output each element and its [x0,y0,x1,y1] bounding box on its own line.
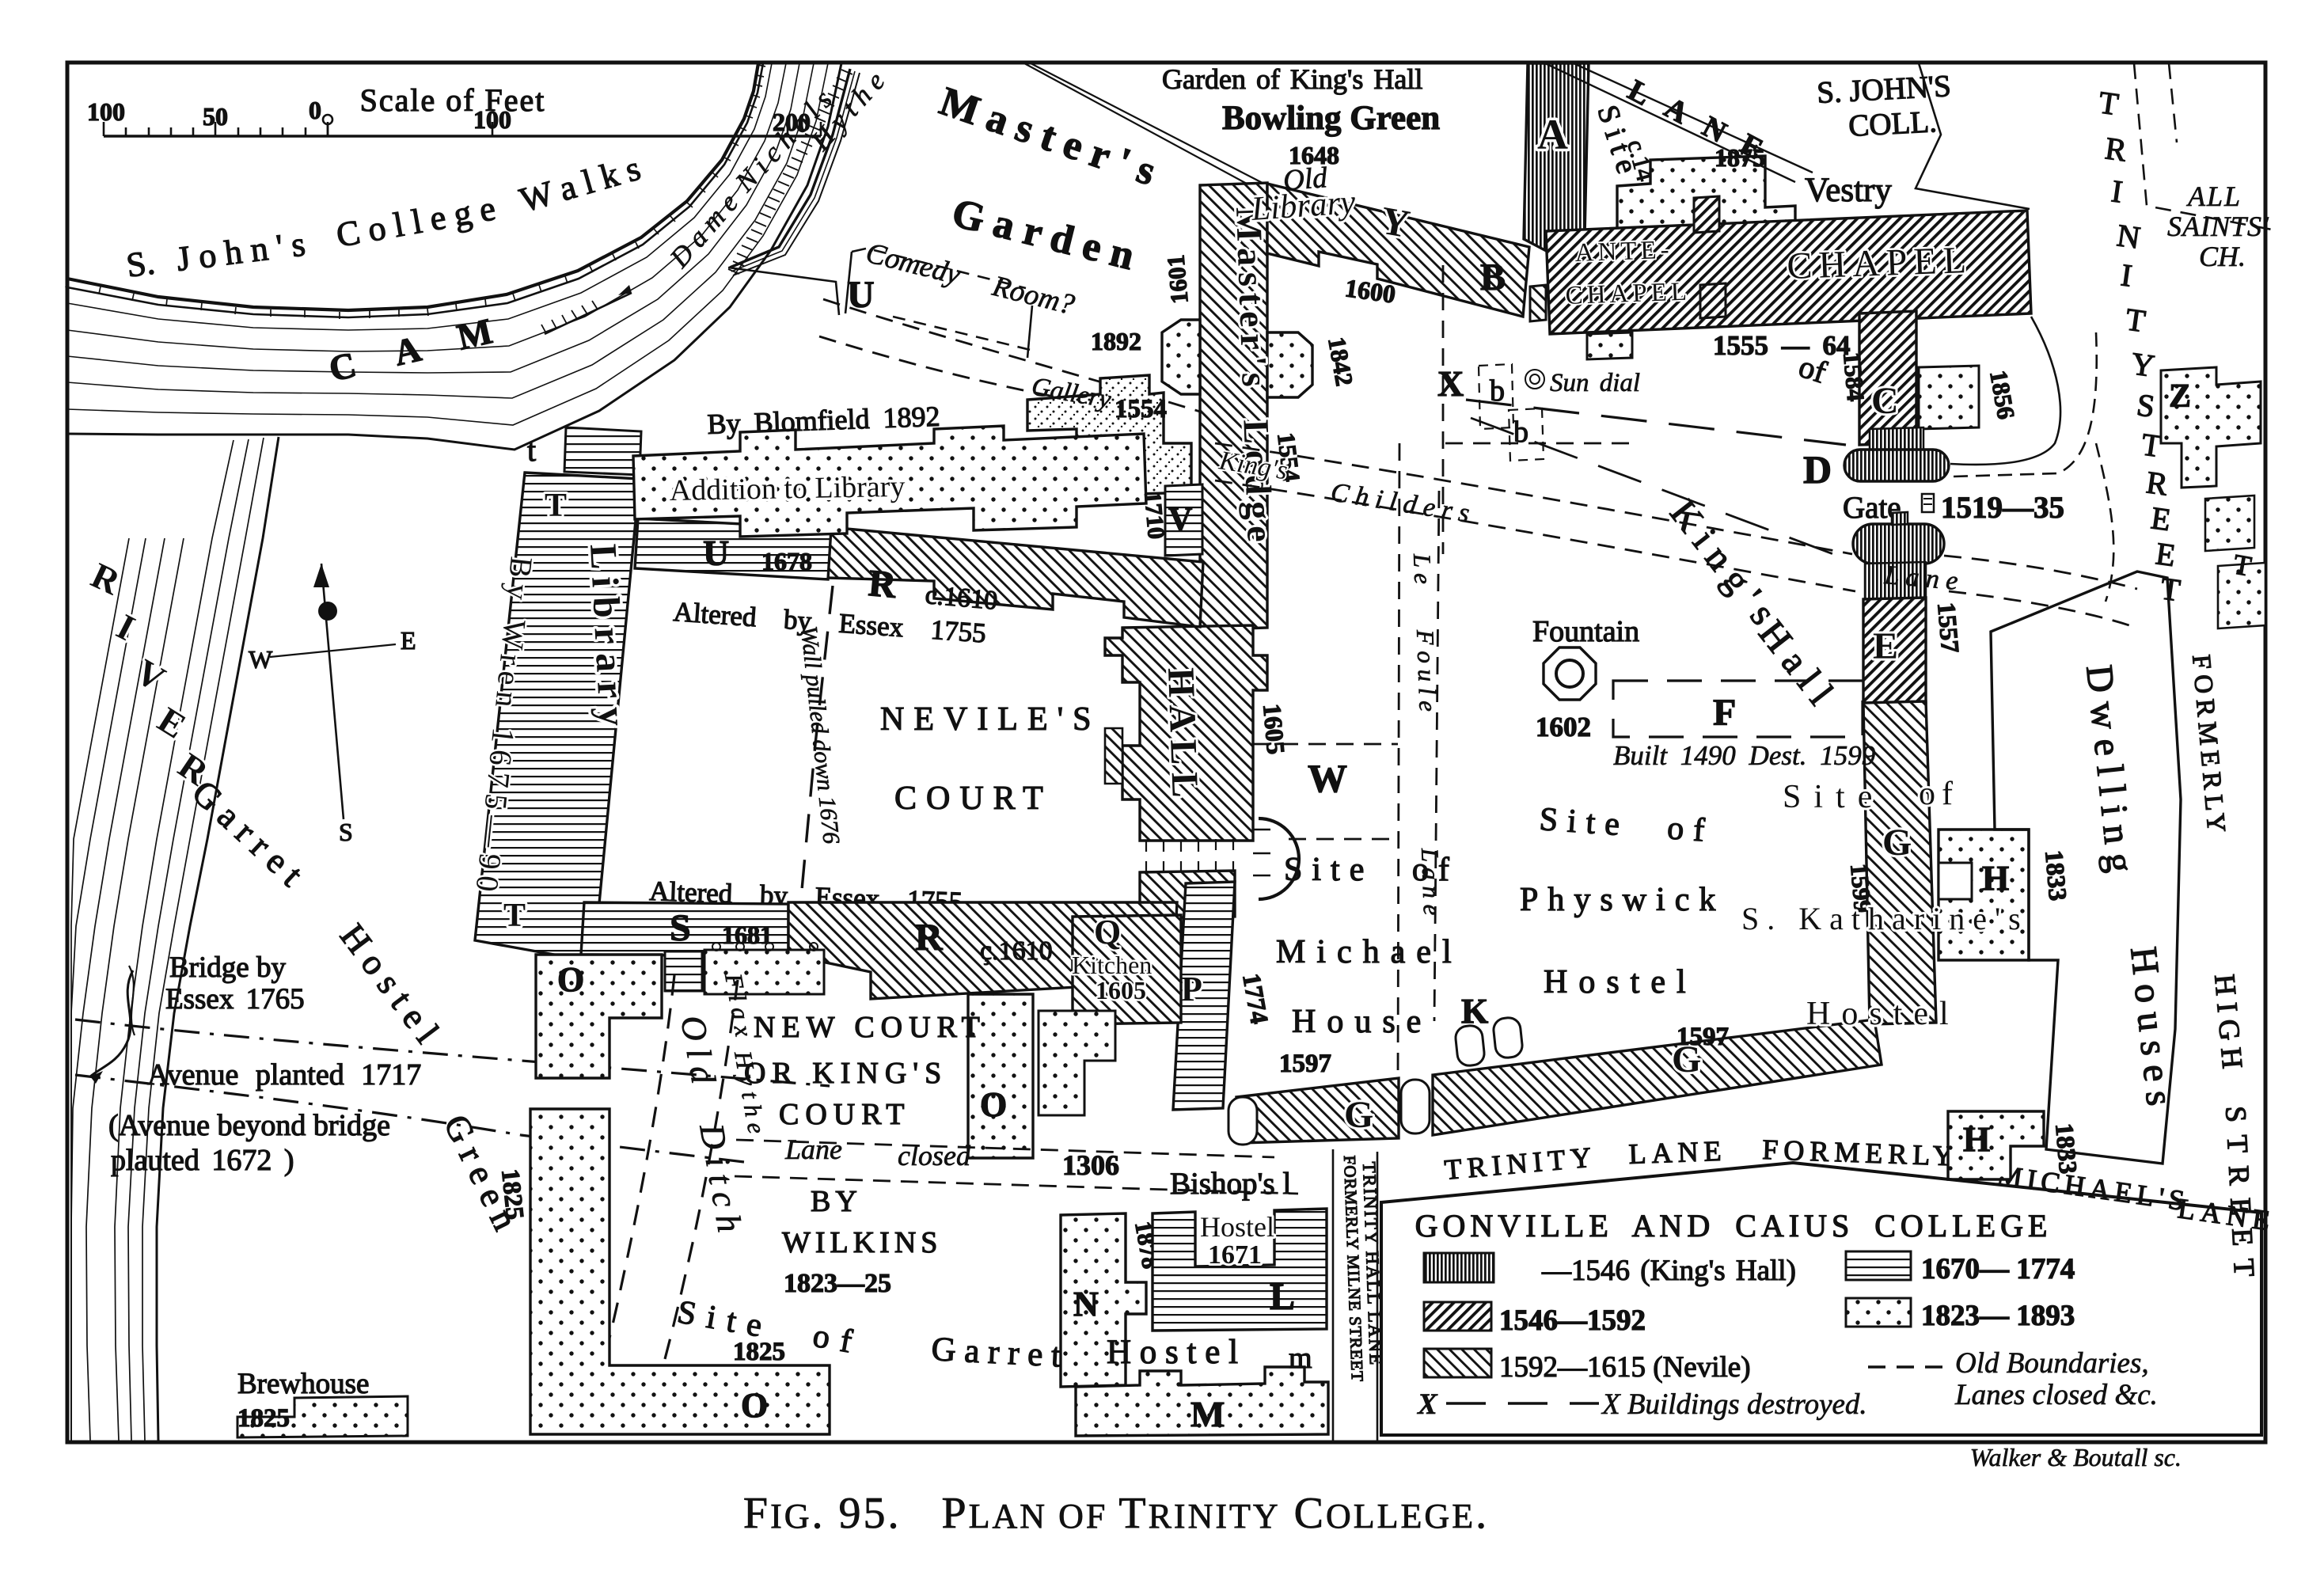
svg-text:S: S [339,818,353,846]
svg-text:1710: 1710 [1139,491,1169,541]
svg-text:Bowling Green: Bowling Green [1222,100,1440,137]
svg-text:of: of [1919,776,1959,812]
svg-text:LANE: LANE [1628,1135,1727,1170]
svg-text:G: G [1882,822,1912,864]
svg-text:100: 100 [87,97,125,126]
svg-text:Site: Site [1783,779,1885,815]
svg-text:1605: 1605 [1096,976,1146,1004]
svg-text:Physwick: Physwick [1520,882,1725,918]
svg-text:1823— 1893: 1823— 1893 [1921,1300,2075,1332]
svg-text:Addition to Library: Addition to Library [669,470,905,507]
svg-text:1602: 1602 [1536,712,1591,742]
svg-text:1678: 1678 [761,547,812,575]
svg-text:COURT: COURT [894,780,1053,817]
svg-text:CHAPEL: CHAPEL [1565,277,1692,310]
svg-text:1597: 1597 [1279,1050,1331,1078]
svg-text:O: O [980,1085,1007,1124]
svg-text:X: X [1417,1388,1438,1421]
svg-text:m: m [1289,1342,1312,1375]
svg-text:(Avenue beyond bridge: (Avenue beyond bridge [108,1109,390,1142]
svg-text:FIG. 95. PLAN OF TRINITY COL: FIG. 95. PLAN OF TRINITY COLLEGE. [743,1489,1489,1538]
svg-text:F: F [1713,692,1736,734]
svg-text:Q: Q [1094,913,1121,951]
svg-text:Kitchen: Kitchen [1072,951,1152,979]
svg-text:X Buildings destroyed.: X Buildings destroyed. [1601,1388,1867,1421]
svg-text:Michael: Michael [1276,934,1463,970]
svg-text:NEW COURT: NEW COURT [754,1011,986,1044]
svg-text:Library: Library [1249,184,1357,228]
svg-text:ç.1610: ç.1610 [980,936,1053,966]
svg-text:P: P [1181,970,1202,1008]
svg-text:R: R [915,917,944,959]
svg-text:1306: 1306 [1062,1149,1119,1181]
svg-text:BY: BY [811,1185,862,1218]
svg-text:V: V [1168,502,1192,538]
svg-text:H: H [1982,859,2009,898]
svg-text:1823—25: 1823—25 [784,1269,891,1298]
svg-text:O: O [557,960,584,999]
svg-text:Bishop's l: Bishop's l [1170,1167,1291,1201]
svg-text:1825: 1825 [496,1168,530,1221]
svg-text:T: T [545,488,567,524]
svg-text:H o s t e l: H o s t e l [1107,1334,1238,1371]
svg-text:L e: L e [1408,552,1437,585]
svg-text:ALL: ALL [2186,180,2242,212]
svg-text:G a r r e t: G a r r e t [930,1331,1061,1374]
svg-text:t: t [527,432,536,468]
svg-text:Hostel: Hostel [1544,964,1697,1001]
svg-text:N: N [1073,1285,1099,1323]
svg-text:1519—35: 1519—35 [1941,491,2064,525]
svg-text:Fountain: Fountain [1532,615,1639,648]
svg-text:Sun dial: Sun dial [1550,369,1640,397]
svg-text:COURT: COURT [779,1098,911,1131]
svg-text:100: 100 [473,105,511,134]
svg-text:1670— 1774: 1670— 1774 [1921,1253,2075,1285]
svg-text:—1546 (King's Hall): —1546 (King's Hall) [1541,1255,1796,1287]
svg-text:1892: 1892 [1091,327,1141,355]
svg-text:1584: 1584 [1838,351,1870,403]
svg-text:closed: closed [898,1140,971,1171]
svg-text:1833: 1833 [2040,849,2072,902]
svg-text:W: W [1308,756,1347,800]
svg-text:Garden of King's Hall: Garden of King's Hall [1162,63,1422,95]
svg-text:COLL.: COLL. [1847,104,1938,143]
svg-text:OR KING'S: OR KING'S [744,1057,947,1090]
svg-text:Brewhouse: Brewhouse [237,1368,369,1400]
svg-text:ANTE-: ANTE- [1574,236,1673,268]
svg-text:0: 0 [309,96,321,124]
svg-text:Lanes closed &c.: Lanes closed &c. [1954,1379,2158,1411]
svg-text:1601: 1601 [1161,254,1193,306]
svg-text:WILKINS: WILKINS [782,1226,942,1259]
svg-text:1554: 1554 [1115,395,1167,423]
svg-text:Lane: Lane [784,1133,842,1165]
svg-text:CH.: CH. [2199,241,2246,272]
svg-text:50: 50 [203,102,228,131]
svg-text:Old Boundaries,: Old Boundaries, [1955,1347,2149,1380]
svg-text:S: S [670,907,691,949]
svg-text:Walker & Boutall sc.: Walker & Boutall sc. [1970,1443,2182,1471]
svg-text:Built 1490 Dest. 1599: Built 1490 Dest. 1599 [1613,740,1875,771]
svg-text:U: U [703,533,729,573]
svg-text:H: H [1963,1120,1990,1159]
svg-text:Scale of Feet: Scale of Feet [360,82,546,118]
svg-text:O: O [741,1386,768,1425]
svg-text:E: E [401,626,416,655]
svg-text:G: G [1344,1094,1373,1136]
svg-text:U: U [847,274,875,316]
svg-text:Bridge by: Bridge by [169,951,286,984]
svg-text:S.: S. [124,242,158,284]
svg-text:Site of: Site of [1284,852,1459,888]
svg-text:C: C [1871,380,1899,422]
svg-text:F o u l e: F o u l e [1411,628,1442,712]
svg-text:B: B [1480,256,1506,298]
svg-text:Vestry: Vestry [1805,172,1892,209]
svg-text:1597: 1597 [1677,1023,1729,1051]
svg-text:1825: 1825 [733,1338,785,1366]
svg-text:1681: 1681 [722,921,773,949]
svg-text:GONVILLE AND CAIUS COLLEGE: GONVILLE AND CAIUS COLLEGE [1415,1208,2052,1244]
svg-text:NEVILE'S: NEVILE'S [880,701,1101,738]
svg-text:X: X [1437,363,1464,404]
svg-text:L: L [1270,1276,1295,1318]
svg-text:plauted 1672 ): plauted 1672 ) [111,1144,294,1177]
svg-text:CHAPEL: CHAPEL [1787,239,1973,287]
svg-text:H A L L: H A L L [1160,667,1206,799]
svg-text:S. Katharine's: S. Katharine's [1741,901,2029,936]
svg-text:Hostel: Hostel [1200,1211,1274,1243]
svg-text:1833: 1833 [2050,1122,2083,1175]
svg-text:Essex 1765: Essex 1765 [165,983,305,1016]
svg-text:R: R [867,562,898,606]
svg-text:W: W [249,645,273,674]
svg-text:T: T [503,898,526,934]
svg-text:1605: 1605 [1258,702,1290,755]
svg-text:1671: 1671 [1208,1240,1262,1270]
svg-text:A: A [1537,111,1568,158]
svg-text:1825: 1825 [237,1404,290,1433]
svg-text:Z: Z [2169,378,2191,415]
svg-text:1592—1615 (Nevile): 1592—1615 (Nevile) [1499,1351,1751,1384]
svg-text:Avenue planted 1717: Avenue planted 1717 [147,1058,421,1092]
svg-text:1546—1592: 1546—1592 [1499,1304,1646,1337]
svg-text:Hostel: Hostel [1806,996,1960,1032]
svg-text:1555 — 64: 1555 — 64 [1713,330,1851,361]
svg-text:K: K [1461,992,1488,1031]
svg-text:1557: 1557 [1932,601,1965,654]
svg-text:D: D [1803,447,1832,492]
svg-text:E: E [1873,625,1898,667]
svg-text:House: House [1292,1004,1432,1040]
svg-text:M: M [1190,1394,1225,1434]
svg-text:SAINTS': SAINTS' [2167,211,2269,242]
